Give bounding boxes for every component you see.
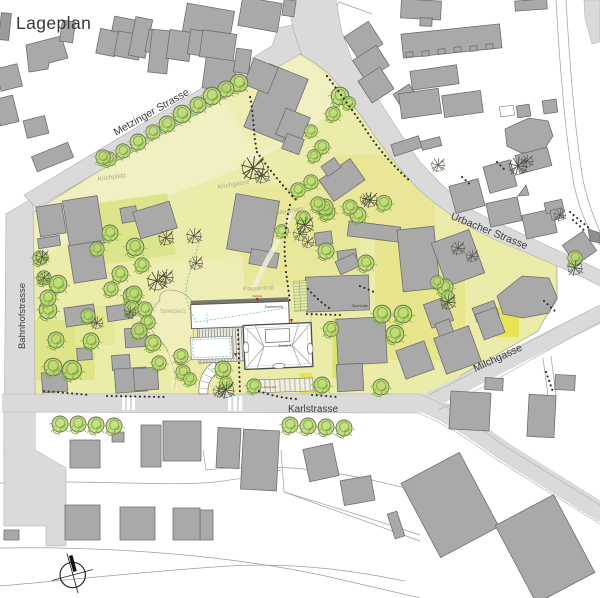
svg-text:Lageplan: Lageplan	[16, 13, 91, 33]
svg-text:Sporthalle: Sporthalle	[352, 304, 368, 308]
svg-text:Parkplatz: Parkplatz	[264, 385, 277, 389]
svg-text:Bestand: Bestand	[279, 343, 292, 348]
svg-text:Erweiterung: Erweiterung	[265, 305, 283, 310]
svg-text:Zugang: Zugang	[252, 294, 263, 298]
svg-text:Spielplatz: Spielplatz	[160, 309, 186, 315]
svg-text:Bahnhofstrasse: Bahnhofstrasse	[17, 283, 28, 349]
svg-text:Karlstrasse: Karlstrasse	[288, 404, 338, 415]
